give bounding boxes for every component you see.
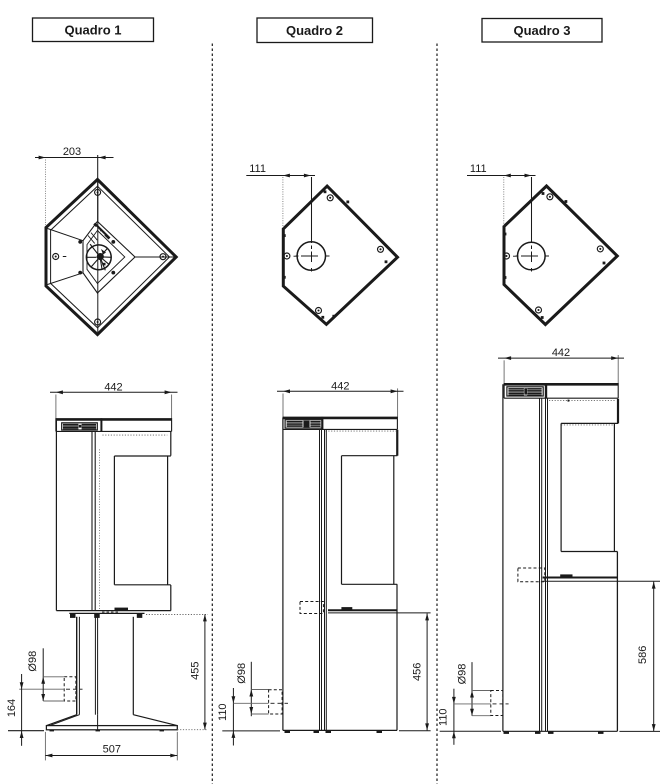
svg-text:Ø98: Ø98	[27, 651, 39, 672]
svg-text:586: 586	[637, 646, 649, 664]
svg-text:111: 111	[470, 163, 487, 175]
svg-text:Ø98: Ø98	[456, 664, 468, 685]
svg-text:164: 164	[6, 699, 18, 717]
svg-text:Quadro 3: Quadro 3	[513, 23, 570, 38]
svg-text:110: 110	[217, 703, 229, 721]
svg-text:507: 507	[103, 744, 121, 756]
svg-text:456: 456	[411, 663, 423, 681]
svg-text:110: 110	[438, 708, 450, 726]
svg-text:442: 442	[104, 381, 122, 393]
svg-text:Ø98: Ø98	[236, 663, 248, 684]
svg-text:Quadro 1: Quadro 1	[64, 23, 121, 38]
svg-text:455: 455	[190, 662, 202, 680]
svg-text:111: 111	[249, 163, 266, 175]
svg-text:203: 203	[63, 146, 81, 158]
svg-text:442: 442	[331, 380, 349, 392]
svg-text:442: 442	[552, 347, 570, 359]
svg-text:Quadro 2: Quadro 2	[286, 23, 343, 38]
